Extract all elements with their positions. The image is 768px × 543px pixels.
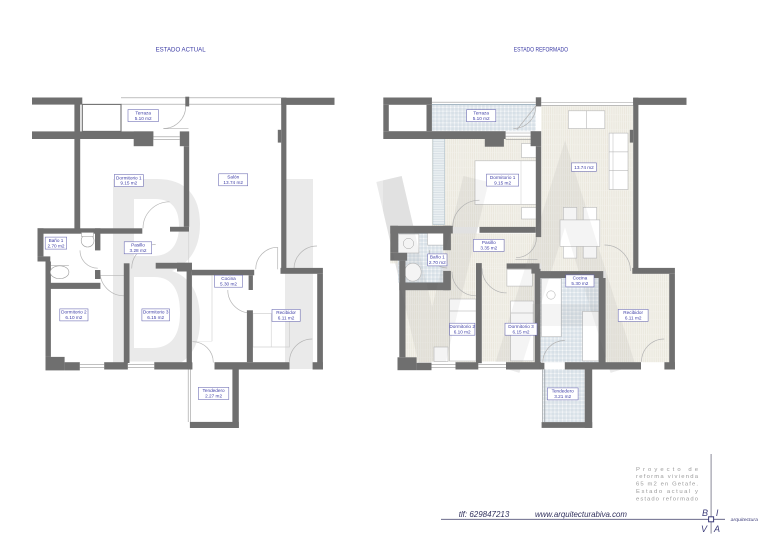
svg-text:13.74 m2: 13.74 m2	[223, 180, 243, 185]
svg-text:6.15 m2: 6.15 m2	[147, 315, 164, 320]
svg-text:Recibidor: Recibidor	[623, 310, 643, 315]
svg-text:2.70 m2: 2.70 m2	[429, 260, 446, 265]
svg-text:6.11 m2: 6.11 m2	[278, 316, 295, 321]
svg-text:Tendedero: Tendedero	[552, 389, 575, 394]
svg-text:tlf: 629847213: tlf: 629847213	[459, 510, 510, 519]
svg-text:Dormitorio 3: Dormitorio 3	[508, 324, 534, 329]
svg-text:Terraza: Terraza	[135, 110, 151, 115]
svg-text:Pasillo: Pasillo	[482, 240, 496, 245]
svg-text:I: I	[716, 508, 719, 518]
svg-text:ESTADO ACTUAL: ESTADO ACTUAL	[156, 47, 206, 54]
svg-text:Cocina: Cocina	[221, 276, 236, 281]
svg-text:reforma vivienda: reforma vivienda	[636, 474, 699, 480]
svg-text:Estado actual y: Estado actual y	[636, 489, 698, 495]
svg-text:2.70 m2: 2.70 m2	[48, 243, 65, 248]
svg-text:Tendedero: Tendedero	[203, 388, 226, 393]
svg-text:6.15 m2: 6.15 m2	[513, 329, 530, 334]
svg-text:3.28 m2: 3.28 m2	[130, 248, 147, 253]
svg-text:5.10 m2: 5.10 m2	[473, 116, 490, 121]
svg-text:5.10 m2: 5.10 m2	[135, 116, 152, 121]
svg-text:Terraza: Terraza	[473, 111, 489, 116]
svg-text:5.30 m2: 5.30 m2	[571, 281, 588, 286]
svg-text:2.27 m2: 2.27 m2	[205, 394, 222, 399]
svg-text:Dormitorio 3: Dormitorio 3	[143, 310, 169, 315]
svg-text:Dormitorio 1: Dormitorio 1	[490, 175, 516, 180]
svg-text:Pasillo: Pasillo	[131, 243, 145, 248]
svg-text:arquitectura: arquitectura	[731, 517, 759, 522]
svg-text:9.15 m2: 9.15 m2	[120, 181, 137, 186]
svg-text:6.10 m2: 6.10 m2	[65, 315, 82, 320]
svg-text:Recibidor: Recibidor	[276, 310, 296, 315]
svg-text:5.30 m2: 5.30 m2	[220, 281, 237, 286]
svg-text:Dormitorio 1: Dormitorio 1	[116, 175, 142, 180]
svg-text:B: B	[702, 508, 708, 518]
svg-text:A: A	[713, 524, 720, 534]
svg-text:Proyecto de: Proyecto de	[636, 467, 699, 473]
svg-text:Dormitorio 2: Dormitorio 2	[61, 310, 87, 315]
svg-text:13.74 m2: 13.74 m2	[574, 165, 594, 170]
svg-text:6.10 m2: 6.10 m2	[454, 329, 471, 334]
svg-text:ESTADO REFORMADO: ESTADO REFORMADO	[514, 47, 568, 54]
svg-text:estado reformado: estado reformado	[636, 496, 699, 502]
svg-text:www.arquitecturabiva.com: www.arquitecturabiva.com	[535, 510, 627, 519]
svg-text:6.11 m2: 6.11 m2	[625, 316, 642, 321]
svg-text:Dormitorio 2: Dormitorio 2	[449, 324, 475, 329]
svg-text:Baño 1: Baño 1	[49, 238, 64, 243]
svg-text:9.15 m2: 9.15 m2	[494, 180, 511, 185]
svg-text:3.35 m2: 3.35 m2	[480, 246, 497, 251]
svg-text:3.21 m2: 3.21 m2	[554, 394, 571, 399]
svg-text:Cocina: Cocina	[573, 276, 588, 281]
svg-text:Salón: Salón	[227, 175, 239, 180]
svg-text:V: V	[701, 524, 708, 534]
svg-text:Baño 1: Baño 1	[430, 255, 445, 260]
svg-text:65 m2 en Getafe.: 65 m2 en Getafe.	[636, 482, 698, 488]
